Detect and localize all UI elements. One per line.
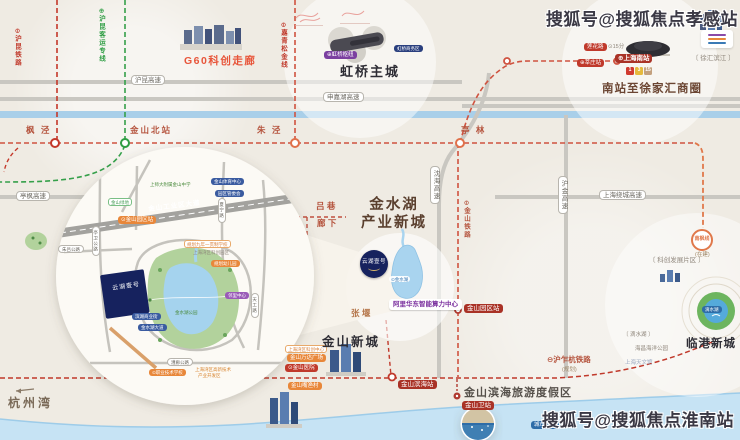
west-corner-dash <box>4 148 18 172</box>
hongqiao-city-title: 虹桥主城 <box>340 61 400 80</box>
project-logo-arc <box>368 265 380 271</box>
mall-logo-card <box>701 30 733 48</box>
jinshuihu-title-line2: 产业新城 <box>352 214 436 232</box>
watermark-sohu-bottom: 搜狐号@搜狐焦点淮南站 <box>542 406 734 431</box>
logo-bar-orange <box>708 38 726 40</box>
g60-buildings <box>180 25 242 50</box>
project-logo: 云湖壹号 <box>360 250 388 278</box>
watermark-sohu-top: 搜狐号@搜狐焦点孝感站 <box>546 5 738 30</box>
logo-bar-purple <box>708 34 726 36</box>
lingang-newtown-title: 临港新城 <box>686 335 736 351</box>
west-green-park <box>25 232 47 250</box>
ali-center-icon <box>453 303 460 310</box>
nanzhan-xujiahui-title: 南站至徐家汇商圈 <box>602 80 702 96</box>
jinshuihu-title-line1: 金水湖 <box>352 196 436 214</box>
binhai-resort-title: 金山滨海旅游度假区 <box>464 384 572 400</box>
bay-direction-arrow <box>16 389 34 394</box>
jinshan-region-promo-map: ⊖沪昆铁路⊕沪昆客运专线⊖嘉青松金线⊖金山铁路⊖沪乍杭铁路(规划)枫 泾金山北站… <box>0 0 740 440</box>
g60-corridor-title: G60科创走廊 <box>184 53 256 68</box>
logo-bar-blue <box>708 42 726 44</box>
shanghai-south-station-building <box>626 41 670 57</box>
jinshan-newtown-title: 金山新城 <box>322 331 380 350</box>
jinshanwei-towers <box>266 392 302 428</box>
jinshuihu-newcity-title: 金水湖 产业新城 <box>352 196 436 232</box>
project-parcel <box>100 269 150 319</box>
project-logo-text: 云湖壹号 <box>362 257 386 265</box>
hangzhou-bay-title: 杭州湾 <box>8 394 53 411</box>
jinshanwei-pin <box>454 393 461 400</box>
